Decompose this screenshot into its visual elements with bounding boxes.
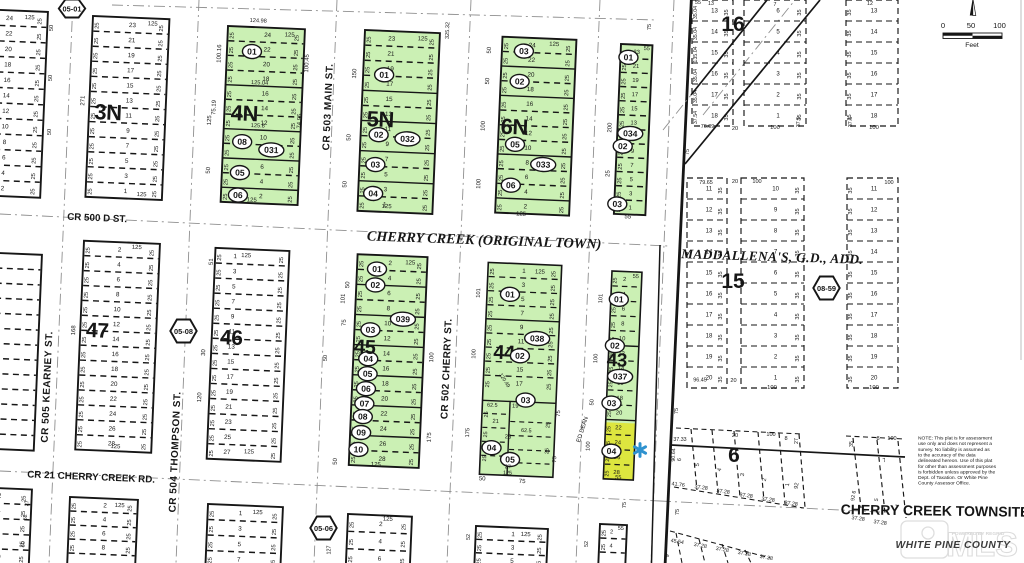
svg-text:034: 034	[623, 128, 638, 139]
svg-text:25: 25	[272, 529, 278, 536]
svg-text:35: 35	[848, 376, 854, 382]
svg-text:50: 50	[485, 77, 491, 85]
svg-text:25: 25	[213, 360, 219, 367]
svg-text:25: 25	[20, 526, 26, 533]
svg-text:100: 100	[770, 125, 780, 131]
svg-text:25: 25	[621, 78, 627, 85]
svg-text:25: 25	[89, 158, 95, 165]
svg-text:25: 25	[562, 148, 568, 155]
svg-text:35: 35	[718, 229, 724, 235]
svg-text:125: 125	[115, 503, 126, 509]
svg-text:25: 25	[209, 526, 215, 533]
svg-text:45: 45	[354, 336, 377, 359]
svg-text:22: 22	[380, 410, 388, 417]
svg-text:25: 25	[228, 62, 234, 69]
svg-text:35: 35	[848, 292, 854, 298]
svg-text:35: 35	[848, 187, 854, 193]
svg-text:127: 127	[327, 546, 333, 555]
svg-text:25: 25	[30, 188, 36, 195]
svg-text:01: 01	[379, 70, 389, 80]
svg-text:for other than assessment purp: for other than assessment purposes	[918, 464, 997, 470]
svg-text:35: 35	[848, 271, 854, 277]
svg-text:20: 20	[732, 126, 738, 132]
svg-text:25: 25	[499, 160, 505, 167]
svg-text:13: 13	[708, 1, 714, 7]
svg-text:25: 25	[294, 35, 300, 42]
svg-text:10: 10	[113, 306, 121, 313]
svg-text:25: 25	[292, 94, 298, 101]
svg-text:25: 25	[89, 143, 95, 150]
svg-text:25: 25	[365, 82, 371, 89]
svg-text:35.04: 35.04	[693, 69, 699, 82]
svg-text:14: 14	[383, 350, 391, 357]
svg-text:55: 55	[624, 214, 632, 220]
svg-text:25: 25	[19, 556, 25, 563]
svg-text:06: 06	[506, 180, 516, 190]
svg-text:76.09: 76.09	[701, 124, 715, 130]
svg-text:12: 12	[2, 108, 10, 115]
svg-text:25: 25	[126, 533, 132, 540]
svg-text:25: 25	[412, 384, 418, 391]
svg-text:25: 25	[277, 302, 283, 309]
svg-text:101: 101	[476, 288, 482, 298]
svg-text:50: 50	[342, 180, 348, 188]
svg-text:8: 8	[621, 321, 624, 327]
svg-text:03: 03	[521, 395, 531, 405]
svg-text:100: 100	[481, 120, 487, 131]
svg-text:35: 35	[795, 187, 801, 193]
svg-text:20: 20	[5, 46, 13, 53]
svg-text:24: 24	[109, 411, 117, 418]
svg-text:25: 25	[487, 339, 493, 346]
svg-text:23: 23	[225, 419, 233, 426]
svg-text:100: 100	[887, 436, 896, 442]
svg-text:100.45: 100.45	[304, 53, 311, 72]
svg-text:37.5: 37.5	[796, 117, 802, 127]
svg-text:19: 19	[706, 354, 713, 361]
svg-text:25: 25	[566, 46, 572, 53]
svg-text:25: 25	[80, 381, 86, 388]
svg-text:25: 25	[79, 411, 85, 418]
svg-text:25: 25	[215, 300, 221, 307]
svg-text:25: 25	[423, 190, 429, 197]
svg-text:125: 125	[381, 204, 392, 210]
svg-text:25: 25	[149, 265, 155, 272]
svg-text:14: 14	[711, 29, 718, 36]
svg-text:25: 25	[601, 544, 607, 551]
svg-text:100: 100	[869, 385, 879, 391]
svg-text:25: 25	[489, 282, 495, 289]
svg-text:25: 25	[88, 173, 94, 180]
svg-text:20: 20	[732, 179, 738, 185]
svg-text:25: 25	[213, 345, 219, 352]
svg-text:is forbidden unless approved b: is forbidden unless approved by the	[918, 469, 995, 475]
svg-text:18: 18	[711, 113, 718, 120]
svg-text:25: 25	[229, 32, 235, 39]
svg-text:use only and does not represen: use only and does not represent a	[918, 441, 992, 447]
svg-text:10: 10	[260, 134, 268, 141]
svg-text:125: 125	[383, 516, 394, 522]
svg-text:55: 55	[615, 475, 621, 481]
svg-text:25: 25	[612, 277, 618, 283]
svg-text:25: 25	[427, 99, 433, 106]
svg-text:25: 25	[70, 545, 76, 552]
svg-text:75: 75	[685, 149, 691, 155]
svg-text:35: 35	[795, 376, 801, 382]
svg-text:25: 25	[154, 146, 160, 153]
svg-text:43: 43	[606, 350, 627, 372]
svg-text:25: 25	[429, 39, 435, 46]
svg-text:25: 25	[537, 534, 543, 541]
svg-text:125: 125	[405, 260, 416, 266]
svg-text:50: 50	[323, 355, 329, 361]
svg-text:35: 35	[795, 271, 801, 277]
svg-text:25: 25	[158, 55, 164, 62]
svg-text:18: 18	[871, 333, 878, 340]
svg-text:25: 25	[489, 296, 495, 303]
svg-text:25: 25	[271, 453, 277, 460]
svg-text:25: 25	[547, 370, 553, 377]
svg-text:5: 5	[630, 177, 633, 183]
svg-text:125: 125	[110, 444, 121, 450]
svg-text:NOTE: This plat is for assessm: NOTE: This plat is for assessment	[918, 436, 993, 442]
svg-text:17: 17	[711, 92, 718, 99]
svg-text:15: 15	[706, 270, 713, 277]
svg-text:25: 25	[84, 277, 90, 284]
svg-text:25: 25	[486, 353, 492, 360]
svg-text:05: 05	[505, 454, 515, 464]
svg-text:14: 14	[112, 336, 120, 343]
svg-text:25: 25	[410, 429, 416, 436]
svg-text:35: 35	[848, 229, 854, 235]
svg-text:25: 25	[549, 327, 555, 334]
svg-text:25: 25	[155, 116, 161, 123]
svg-text:15: 15	[227, 358, 235, 365]
svg-text:100: 100	[429, 352, 435, 363]
svg-text:25: 25	[210, 420, 216, 427]
svg-text:75: 75	[556, 410, 562, 417]
svg-text:125: 125	[241, 253, 252, 259]
svg-text:62.5: 62.5	[487, 402, 498, 408]
svg-text:25: 25	[85, 262, 91, 269]
svg-text:35: 35	[797, 30, 803, 36]
svg-text:25: 25	[208, 557, 214, 563]
svg-text:25: 25	[476, 558, 482, 563]
svg-text:25: 25	[36, 49, 42, 56]
svg-text:50: 50	[487, 46, 493, 54]
svg-text:11: 11	[871, 186, 878, 193]
svg-text:25: 25	[424, 175, 430, 182]
svg-text:35: 35	[847, 9, 853, 15]
svg-text:25: 25	[365, 67, 371, 74]
svg-text:20: 20	[110, 381, 118, 388]
svg-text:35: 35	[724, 114, 730, 120]
svg-text:11: 11	[518, 338, 525, 345]
svg-text:18: 18	[706, 333, 713, 340]
svg-text:25: 25	[84, 292, 90, 299]
svg-text:120: 120	[197, 392, 203, 403]
svg-text:032: 032	[400, 134, 415, 145]
svg-text:17: 17	[127, 67, 135, 74]
svg-text:175: 175	[427, 432, 433, 443]
svg-text:46: 46	[220, 326, 243, 350]
svg-text:25: 25	[37, 18, 43, 25]
svg-text:13: 13	[871, 228, 878, 235]
svg-text:25: 25	[216, 269, 222, 276]
svg-text:25: 25	[360, 202, 366, 209]
svg-text:125: 125	[244, 449, 255, 455]
svg-text:25: 25	[548, 341, 554, 348]
svg-text:25: 25	[152, 191, 158, 198]
svg-text:52: 52	[466, 534, 472, 540]
svg-text:04: 04	[606, 446, 616, 456]
svg-text:24: 24	[264, 32, 272, 39]
svg-text:35: 35	[718, 208, 724, 214]
svg-text:2: 2	[610, 529, 613, 535]
svg-text:125: 125	[371, 462, 382, 468]
svg-text:05-01: 05-01	[63, 4, 82, 13]
svg-text:25: 25	[361, 172, 367, 179]
svg-text:3N: 3N	[94, 99, 122, 125]
svg-text:25: 25	[147, 309, 153, 316]
svg-text:35: 35	[795, 208, 801, 214]
svg-text:15: 15	[126, 82, 134, 89]
svg-text:25: 25	[209, 450, 215, 457]
svg-text:52: 52	[23, 514, 29, 520]
svg-text:10: 10	[353, 444, 363, 454]
svg-text:25: 25	[409, 459, 415, 466]
svg-text:20: 20	[263, 61, 271, 68]
svg-text:23: 23	[388, 35, 396, 42]
svg-text:100: 100	[993, 21, 1006, 30]
svg-text:35: 35	[847, 72, 853, 78]
svg-text:13: 13	[711, 8, 718, 15]
svg-text:25: 25	[400, 558, 406, 563]
svg-text:25: 25	[504, 43, 510, 50]
svg-text:25: 25	[212, 375, 218, 382]
svg-text:55: 55	[695, 0, 701, 6]
svg-text:25: 25	[229, 47, 235, 54]
svg-text:25: 25	[500, 146, 506, 153]
svg-text:150: 150	[352, 68, 358, 79]
svg-text:17: 17	[226, 374, 234, 381]
svg-text:25: 25	[159, 25, 165, 32]
svg-text:25: 25	[414, 338, 420, 345]
svg-text:25: 25	[208, 542, 214, 549]
svg-text:24: 24	[380, 426, 388, 433]
svg-text:1: 1	[628, 205, 631, 211]
svg-text:75: 75	[342, 319, 348, 327]
svg-text:37.5: 37.5	[848, 117, 854, 127]
svg-text:25: 25	[34, 95, 40, 102]
svg-text:13: 13	[871, 8, 878, 15]
svg-text:35.04: 35.04	[693, 27, 699, 40]
svg-text:35: 35	[797, 51, 803, 57]
svg-text:25: 25	[289, 167, 295, 174]
svg-text:25: 25	[276, 332, 282, 339]
svg-text:25: 25	[565, 75, 571, 82]
svg-text:14: 14	[261, 105, 269, 112]
svg-text:100: 100	[884, 180, 893, 186]
svg-text:100: 100	[869, 125, 879, 131]
svg-text:25: 25	[426, 129, 432, 136]
svg-text:96.45: 96.45	[693, 378, 707, 384]
svg-text:25: 25	[271, 544, 277, 551]
svg-text:168: 168	[71, 325, 77, 336]
svg-text:25: 25	[484, 411, 490, 417]
svg-text:08-59: 08-59	[817, 284, 836, 293]
svg-text:25: 25	[622, 64, 628, 71]
svg-text:16: 16	[262, 90, 270, 97]
svg-text:25: 25	[422, 205, 428, 212]
svg-text:14: 14	[871, 249, 878, 256]
svg-text:25: 25	[148, 280, 154, 287]
svg-text:15: 15	[516, 366, 524, 373]
svg-text:25: 25	[153, 161, 159, 168]
svg-text:25: 25	[487, 325, 493, 332]
svg-text:25: 25	[217, 254, 223, 261]
svg-text:125.6: 125.6	[251, 123, 265, 130]
svg-text:25: 25	[366, 52, 372, 59]
svg-text:50: 50	[206, 166, 212, 174]
svg-text:05-08: 05-08	[174, 327, 193, 336]
svg-text:25: 25	[142, 429, 148, 436]
svg-text:74.95: 74.95	[297, 113, 304, 129]
svg-text:271: 271	[80, 95, 86, 106]
svg-text:75: 75	[647, 24, 653, 30]
svg-text:19: 19	[632, 78, 639, 84]
svg-text:25: 25	[88, 188, 94, 195]
svg-text:52: 52	[584, 541, 590, 547]
svg-text:12: 12	[867, 1, 873, 7]
svg-text:20: 20	[616, 410, 623, 416]
svg-text:25: 25	[424, 160, 430, 167]
svg-text:0: 0	[941, 21, 945, 30]
svg-text:35: 35	[795, 229, 801, 235]
svg-text:22: 22	[528, 57, 536, 64]
svg-text:50: 50	[479, 476, 487, 482]
svg-text:100: 100	[752, 179, 761, 185]
svg-text:2: 2	[623, 277, 626, 283]
svg-text:25: 25	[93, 53, 99, 60]
svg-text:25: 25	[611, 307, 617, 313]
svg-text:125: 125	[285, 32, 296, 38]
svg-text:25: 25	[411, 399, 417, 406]
svg-text:25: 25	[274, 362, 280, 369]
svg-text:25: 25	[209, 511, 215, 518]
svg-text:25: 25	[559, 207, 565, 214]
svg-text:25: 25	[227, 91, 233, 98]
svg-text:25: 25	[482, 455, 488, 461]
svg-text:10: 10	[524, 145, 532, 152]
svg-text:25: 25	[621, 92, 627, 99]
svg-text:to the accuracy of the data: to the accuracy of the data	[918, 452, 976, 458]
svg-text:25: 25	[617, 177, 623, 184]
svg-text:25: 25	[364, 97, 370, 104]
svg-text:25: 25	[278, 272, 284, 279]
svg-text:25: 25	[362, 142, 368, 149]
svg-text:25: 25	[502, 102, 508, 109]
svg-text:25: 25	[290, 138, 296, 145]
svg-text:13: 13	[126, 97, 134, 104]
svg-text:25: 25	[224, 164, 230, 171]
svg-text:031: 031	[264, 145, 279, 156]
svg-text:124.98: 124.98	[250, 18, 267, 25]
svg-text:25: 25	[607, 411, 613, 417]
svg-text:21: 21	[128, 37, 136, 44]
svg-text:04: 04	[368, 188, 378, 198]
svg-text:35: 35	[718, 355, 724, 361]
svg-text:100: 100	[766, 432, 775, 438]
svg-text:CHERRY CREEK TOWNSITE: CHERRY CREEK TOWNSITE	[841, 501, 1024, 520]
svg-text:25: 25	[228, 76, 234, 83]
svg-text:50: 50	[21, 541, 27, 547]
svg-text:21: 21	[225, 404, 233, 411]
svg-text:35: 35	[847, 30, 853, 36]
svg-text:25: 25	[214, 315, 220, 322]
svg-text:25: 25	[225, 135, 231, 142]
svg-text:25: 25	[349, 522, 355, 529]
svg-text:25: 25	[537, 547, 543, 554]
svg-text:35: 35	[795, 355, 801, 361]
svg-text:03: 03	[519, 46, 529, 56]
svg-text:25: 25	[71, 503, 77, 510]
svg-text:100: 100	[593, 354, 599, 364]
svg-text:22: 22	[5, 30, 13, 37]
svg-text:25: 25	[290, 152, 296, 159]
svg-text:25: 25	[551, 271, 557, 278]
svg-text:25: 25	[79, 396, 85, 403]
svg-text:10: 10	[1, 123, 9, 130]
svg-text:100: 100	[476, 178, 482, 189]
svg-text:100.16: 100.16	[216, 44, 223, 63]
svg-text:15: 15	[871, 50, 878, 57]
svg-text:35: 35	[724, 51, 730, 57]
svg-text:125: 125	[247, 197, 258, 203]
svg-text:01: 01	[614, 294, 624, 304]
svg-text:30: 30	[201, 348, 207, 356]
svg-text:100: 100	[767, 385, 777, 391]
svg-text:25: 25	[145, 354, 151, 361]
svg-text:25: 25	[477, 545, 483, 552]
svg-text:25: 25	[272, 423, 278, 430]
svg-text:25: 25	[415, 308, 421, 315]
svg-text:25: 25	[498, 189, 504, 196]
svg-text:35: 35	[797, 72, 803, 78]
svg-text:16: 16	[112, 351, 120, 358]
svg-text:26: 26	[108, 425, 116, 432]
svg-text:25: 25	[490, 268, 496, 275]
svg-text:25: 25	[483, 431, 489, 437]
svg-text:01: 01	[505, 289, 515, 299]
svg-text:35: 35	[848, 355, 854, 361]
svg-text:25: 25	[428, 69, 434, 76]
svg-text:07: 07	[359, 398, 369, 408]
svg-text:21: 21	[633, 64, 640, 70]
svg-text:175: 175	[465, 428, 471, 438]
svg-text:47: 47	[86, 319, 109, 343]
svg-text:75: 75	[674, 408, 680, 414]
svg-text:37.54: 37.54	[693, 111, 699, 124]
svg-text:25: 25	[279, 257, 285, 264]
svg-text:35: 35	[795, 334, 801, 340]
svg-text:55: 55	[618, 526, 624, 532]
svg-text:19: 19	[871, 354, 878, 361]
svg-text:75.19: 75.19	[211, 99, 218, 115]
svg-text:09: 09	[356, 427, 366, 437]
svg-text:100: 100	[585, 441, 591, 451]
svg-text:02: 02	[515, 351, 525, 361]
